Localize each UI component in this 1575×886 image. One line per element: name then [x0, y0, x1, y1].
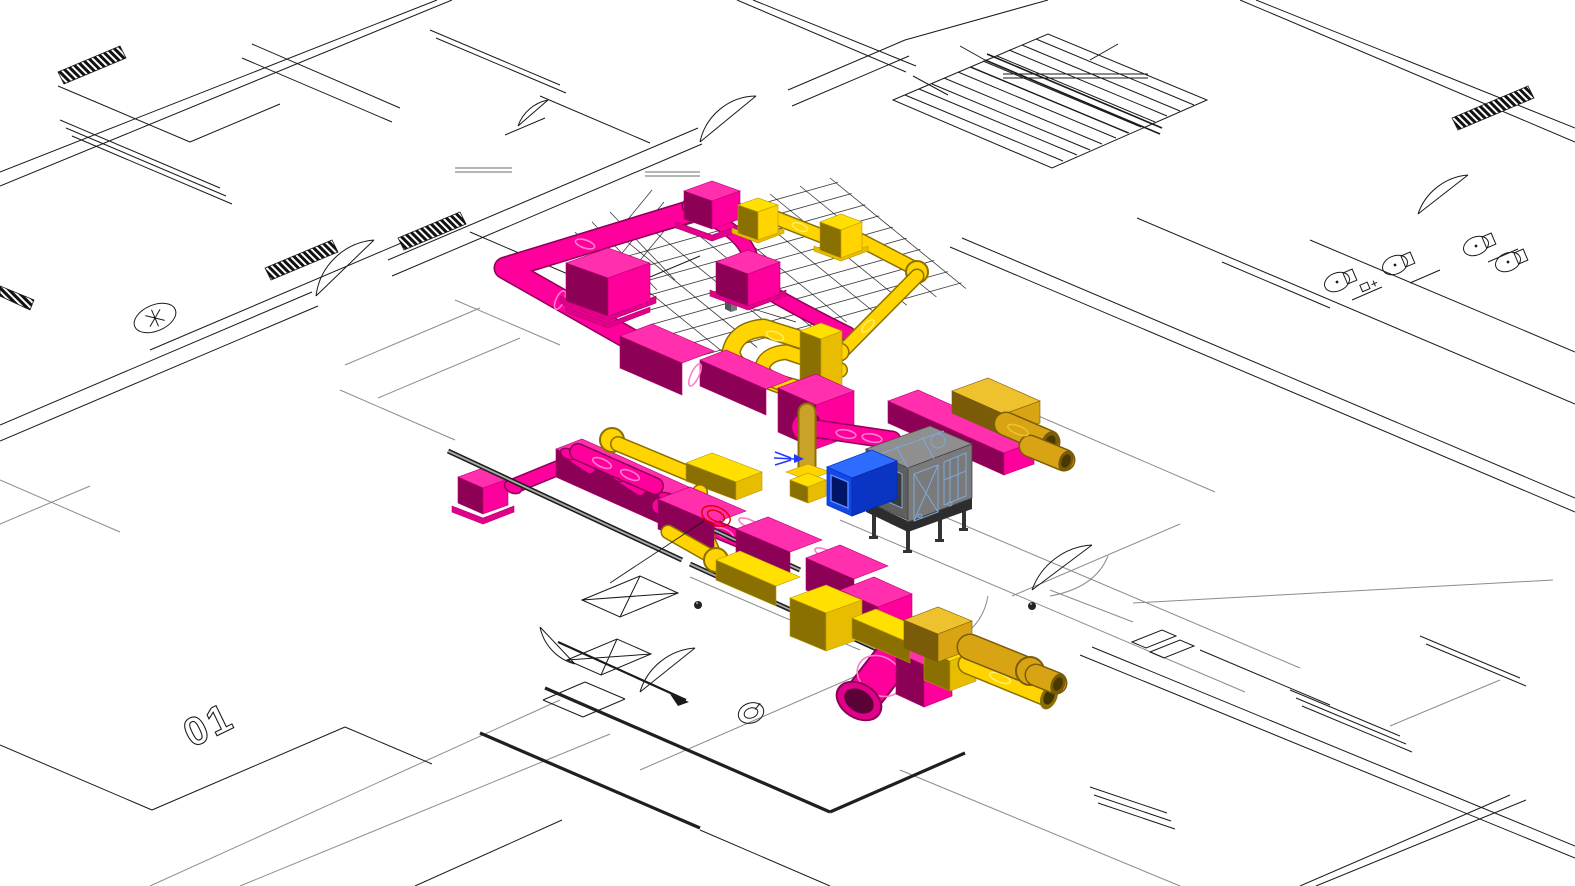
floor-plan-underlay	[0, 0, 1575, 886]
staircase	[893, 34, 1207, 168]
cad-3d-view-canvas[interactable]: 01	[0, 0, 1575, 886]
floor-label: 01	[177, 694, 242, 756]
section-cut-arrow	[670, 694, 689, 706]
plan-walls	[0, 0, 1575, 886]
floor-drain-symbol	[735, 699, 766, 727]
vent-symbols	[1132, 630, 1194, 658]
supply-duct-loop[interactable]	[505, 181, 848, 339]
column-oval-symbol	[130, 297, 181, 338]
extract-damper-box[interactable]	[814, 214, 868, 261]
extract-damper-box[interactable]	[732, 198, 784, 243]
shaft-cross-boxes	[567, 576, 678, 675]
